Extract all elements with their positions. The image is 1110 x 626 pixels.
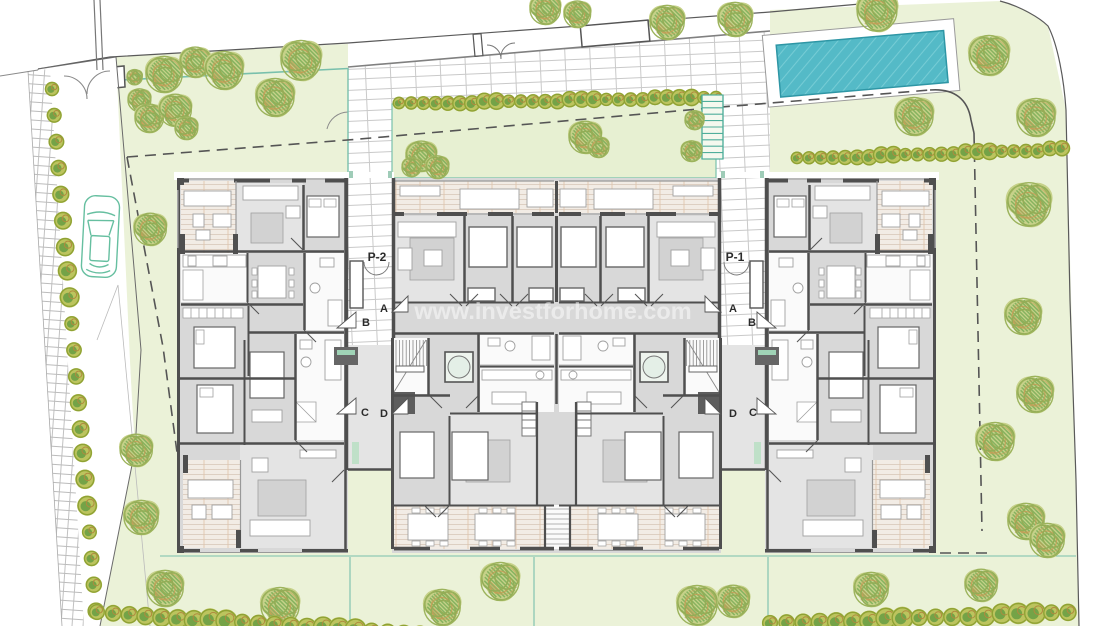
svg-text:C: C [361,407,369,419]
svg-text:A: A [729,303,737,315]
svg-text:A: A [380,303,388,315]
svg-text:B: B [362,317,370,329]
svg-text:P-1: P-1 [726,250,745,264]
svg-text:B: B [748,317,756,329]
svg-text:www.investforhome.com: www.investforhome.com [413,298,691,324]
svg-text:P-2: P-2 [368,250,387,264]
svg-text:D: D [380,408,388,420]
svg-text:D: D [729,408,737,420]
svg-text:C: C [749,407,757,419]
